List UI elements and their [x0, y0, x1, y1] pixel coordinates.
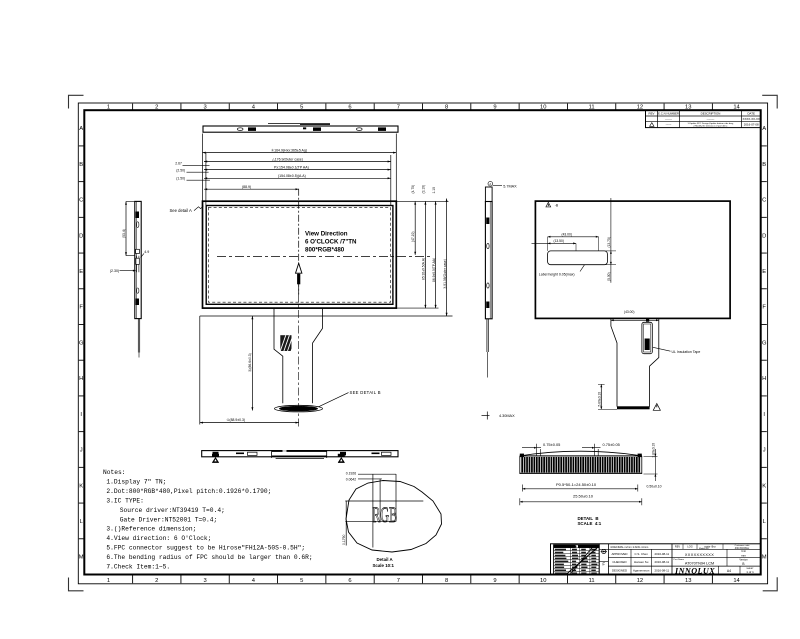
svg-text:DATE: DATE [747, 112, 755, 116]
svg-text:7: 7 [397, 578, 400, 584]
svg-text:C: C [762, 198, 766, 204]
svg-text:B: B [762, 162, 766, 168]
svg-text:P0.5*50-1=24.50±0.10: P0.5*50-1=24.50±0.10 [556, 482, 597, 487]
svg-text:(88.9): (88.9) [242, 185, 251, 189]
svg-text:11: 11 [589, 104, 595, 110]
svg-text:M: M [79, 555, 84, 561]
svg-text:RGB: RGB [372, 502, 397, 527]
svg-text:D: D [762, 233, 766, 239]
svg-text:Source driver:NT39419 T=0.4;: Source driver:NT39419 T=0.4; [120, 507, 225, 514]
svg-text:B: B [79, 162, 83, 168]
svg-text:J: J [80, 448, 83, 454]
svg-text:A: A [489, 182, 491, 186]
svg-text:(4.75): (4.75) [411, 185, 415, 194]
svg-text:(1.50): (1.50) [176, 177, 185, 181]
svg-text:①(88.9±0.3): ①(88.9±0.3) [227, 418, 245, 422]
svg-text:2.Modify the tolerance of part: 2.Modify the tolerance of part dims; [693, 125, 728, 128]
svg-text:Ⓐ91.08(Outer case): Ⓐ91.08(Outer case) [442, 259, 447, 289]
svg-text:(154.08±0.5)(A.A): (154.08±0.5)(A.A) [278, 174, 306, 178]
svg-text:12: 12 [637, 104, 643, 110]
svg-text:REV: REV [649, 112, 655, 116]
svg-text:Part Name: Part Name [674, 558, 685, 561]
svg-text:2.Dot:800*RGB*480,Pixel pitch:: 2.Dot:800*RGB*480,Pixel pitch:0.1926*0.1… [106, 488, 271, 495]
svg-text:1.10: 1.10 [432, 187, 436, 194]
svg-text:SEE DETAIL B: SEE DETAIL B [350, 390, 381, 395]
svg-text:①164.9(Hxx:365±5 Ag): ①164.9(Hxx:365±5 Ag) [271, 148, 307, 152]
svg-text:M: M [762, 555, 767, 561]
svg-text:0.50±0.10: 0.50±0.10 [647, 484, 662, 488]
svg-text:C: C [79, 198, 83, 204]
svg-text:0.0642: 0.0642 [346, 477, 356, 481]
svg-text:(2.50): (2.50) [176, 169, 185, 173]
svg-text:800*RGB*480: 800*RGB*480 [305, 246, 345, 253]
svg-text:(5.00): (5.00) [607, 272, 611, 281]
svg-text:Label height 0.05(max): Label height 0.05(max) [539, 273, 575, 277]
svg-text:①DECIMAL m/mm ②ANG m/mm: ①DECIMAL m/mm ②ANG m/mm [610, 545, 648, 549]
svg-text:5: 5 [300, 578, 303, 584]
svg-text:5.7MAX: 5.7MAX [503, 184, 517, 188]
svg-text:REV: REV [675, 546, 680, 549]
svg-text:(13.50): (13.50) [554, 239, 564, 243]
svg-text:4.View direction: 6 O'Clock;: 4.View direction: 6 O'Clock; [106, 535, 211, 542]
svg-text:3: 3 [203, 578, 206, 584]
svg-text:------: ------ [666, 122, 672, 126]
svg-text:13: 13 [685, 578, 691, 584]
svg-text:AT070TN94 LCM: AT070TN94 LCM [685, 561, 714, 565]
svg-text:2016-08-11: 2016-08-11 [655, 552, 670, 556]
svg-text:J: J [763, 448, 766, 454]
svg-text:9: 9 [493, 578, 496, 584]
svg-text:G: G [79, 340, 84, 346]
svg-text:2016-07-08: 2016-07-08 [744, 122, 759, 126]
svg-text:3.()Reference dimension;: 3.()Reference dimension; [106, 526, 196, 533]
svg-text:11: 11 [589, 578, 595, 584]
svg-text:B: B [742, 562, 744, 566]
svg-text:8: 8 [445, 104, 448, 110]
svg-text:1.Display 7" TN;: 1.Display 7" TN; [106, 478, 166, 485]
svg-text:0.75±0.05: 0.75±0.05 [603, 442, 620, 447]
svg-text:1: 1 [107, 578, 110, 584]
svg-text:XXXX-XX-XX: XXXX-XX-XX [743, 117, 760, 121]
svg-text:5: 5 [300, 104, 303, 110]
svg-text:SCALE 4:1: SCALE 4:1 [578, 521, 602, 526]
svg-text:85.92±0.5(A.A): 85.92±0.5(A.A) [422, 258, 426, 280]
svg-text:E.C.N NUMBER: E.C.N NUMBER [658, 112, 679, 116]
svg-text:(2.30): (2.30) [110, 269, 119, 273]
svg-text:K: K [762, 483, 766, 489]
svg-text:DETAIL B: DETAIL B [578, 516, 599, 521]
svg-text:H: H [79, 376, 83, 382]
svg-text:Ⓐ(86.6±0.3): Ⓐ(86.6±0.3) [247, 353, 252, 372]
svg-text:2016-08-11: 2016-08-11 [655, 569, 670, 573]
svg-text:13: 13 [685, 104, 691, 110]
svg-text:DESCRIPTION: DESCRIPTION [701, 112, 721, 116]
svg-text:5.FPC connector suggest to be: 5.FPC connector suggest to be Hirose"FH1… [106, 545, 305, 552]
svg-text:Px:154.08±0.1(TP AA): Px:154.08±0.1(TP AA) [274, 165, 309, 169]
svg-text:1: 1 [107, 104, 110, 110]
svg-text:See detail A: See detail A [170, 208, 193, 213]
svg-text:Notes:: Notes: [103, 469, 126, 476]
svg-text:F: F [602, 562, 605, 567]
svg-text:10: 10 [540, 104, 546, 110]
svg-text:F: F [762, 305, 766, 311]
svg-text:1.Update FPC Design;Update bot: 1.Update FPC Design;Update bottom side d… [687, 122, 733, 125]
svg-text:E: E [762, 269, 766, 275]
svg-text:(47.10): (47.10) [411, 232, 415, 242]
svg-text:5.80±0.10: 5.80±0.10 [597, 392, 601, 407]
svg-text:7: 7 [397, 104, 400, 110]
svg-text:△176.9(Outer case): △176.9(Outer case) [272, 157, 303, 161]
svg-text:G: G [762, 340, 767, 346]
svg-text:LOG: LOG [687, 546, 692, 549]
svg-text:Detail A: Detail A [377, 557, 394, 562]
svg-text:(3.10): (3.10) [422, 185, 426, 194]
svg-text:(13.75): (13.75) [607, 237, 611, 247]
svg-text:10: 10 [540, 578, 546, 584]
svg-text:2016-08-11: 2016-08-11 [655, 560, 670, 564]
svg-text:0.1926: 0.1926 [346, 472, 356, 476]
svg-text:0.75±0.05: 0.75±0.05 [543, 442, 560, 447]
svg-text:Scale 10:1: Scale 10:1 [373, 563, 395, 568]
svg-text:CHECKED: CHECKED [612, 560, 626, 564]
svg-text:4.30MAX: 4.30MAX [499, 414, 515, 418]
svg-text:3.80±0.10: 3.80±0.10 [651, 443, 655, 458]
svg-text:14: 14 [733, 104, 740, 110]
svg-text:(43.00): (43.00) [562, 233, 572, 237]
svg-text:(43.00): (43.00) [624, 310, 634, 314]
svg-text:6.The bending radius of FPC sh: 6.The bending radius of FPC should be la… [106, 554, 312, 561]
svg-text:Gate Driver:NT52001 T=0.4;: Gate Driver:NT52001 T=0.4; [120, 516, 218, 523]
svg-text:C.S. Chen: C.S. Chen [635, 552, 649, 556]
svg-text:UL Insulation Tape: UL Insulation Tape [672, 350, 701, 354]
svg-text:3: 3 [203, 104, 206, 110]
svg-text:--------: -------- [707, 117, 715, 121]
svg-text:1 of 1: 1 of 1 [746, 570, 754, 574]
svg-text:INNOLUX: INNOLUX [674, 567, 715, 576]
svg-text:3.IC TYPE:: 3.IC TYPE: [106, 497, 144, 504]
svg-text:DESIGNED: DESIGNED [612, 569, 627, 573]
svg-text:4.9: 4.9 [144, 250, 149, 254]
svg-text:(53.4): (53.4) [122, 229, 126, 238]
svg-text:7.Check Item:1~5.: 7.Check Item:1~5. [106, 564, 170, 571]
svg-text:F: F [79, 305, 83, 311]
svg-text:86.9±0.5(TP.AA): 86.9±0.5(TP.AA) [432, 258, 436, 282]
svg-text:Model No.: Model No. [699, 548, 709, 550]
svg-text:2.67: 2.67 [175, 162, 182, 166]
svg-text:A: A [762, 126, 766, 132]
svg-text:APPROVED: APPROVED [611, 552, 627, 556]
svg-text:A: A [79, 126, 83, 132]
svg-text:6 O'CLOCK /7"TN: 6 O'CLOCK /7"TN [305, 239, 357, 246]
svg-text:Hansen Su: Hansen Su [634, 560, 649, 564]
svg-text:6: 6 [348, 104, 351, 110]
svg-text:Agamemnon: Agamemnon [633, 569, 650, 573]
svg-text:H: H [762, 376, 766, 382]
svg-text:2: 2 [155, 578, 158, 584]
svg-text:14: 14 [733, 578, 740, 584]
svg-text:-------: ------- [665, 117, 672, 121]
svg-text:0.1790: 0.1790 [342, 535, 346, 545]
svg-text:A4: A4 [727, 569, 731, 573]
svg-text:View Direction: View Direction [305, 231, 348, 238]
svg-text:K: K [79, 483, 83, 489]
svg-text:12: 12 [637, 578, 643, 584]
svg-text:8: 8 [445, 578, 448, 584]
svg-text:mm: mm [741, 554, 746, 558]
svg-text:9: 9 [493, 104, 496, 110]
svg-text:XXXXXXXXXX: XXXXXXXXXX [685, 553, 714, 557]
svg-text:E: E [79, 269, 83, 275]
svg-text:D: D [79, 233, 83, 239]
svg-text:25.50±0.10: 25.50±0.10 [573, 494, 594, 499]
svg-text:6: 6 [348, 578, 351, 584]
svg-text:2: 2 [155, 104, 158, 110]
